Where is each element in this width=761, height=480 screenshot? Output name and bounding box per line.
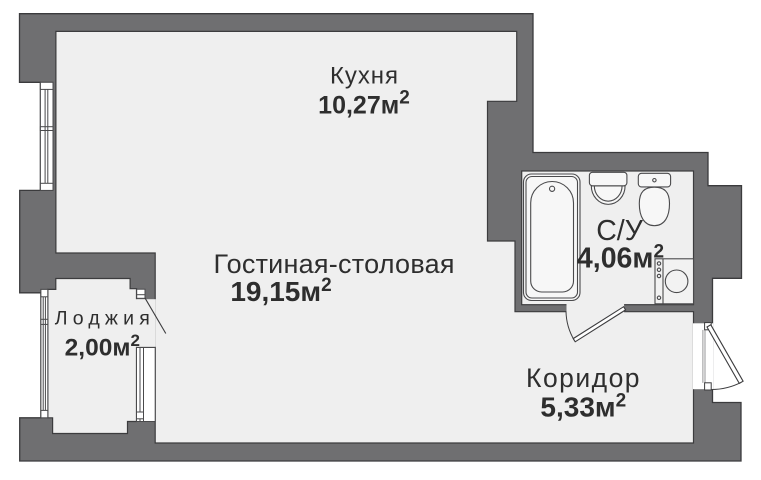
svg-text:2,00м2: 2,00м2: [65, 331, 140, 362]
svg-text:4,06м2: 4,06м2: [577, 242, 664, 275]
svg-text:19,15м2: 19,15м2: [230, 275, 331, 307]
svg-text:5,33м2: 5,33м2: [540, 391, 626, 423]
svg-text:Кухня: Кухня: [330, 63, 398, 90]
svg-text:Коридор: Коридор: [526, 363, 640, 393]
svg-text:10,27м2: 10,27м2: [318, 88, 410, 120]
svg-text:Гостиная-столовая: Гостиная-столовая: [214, 249, 455, 279]
